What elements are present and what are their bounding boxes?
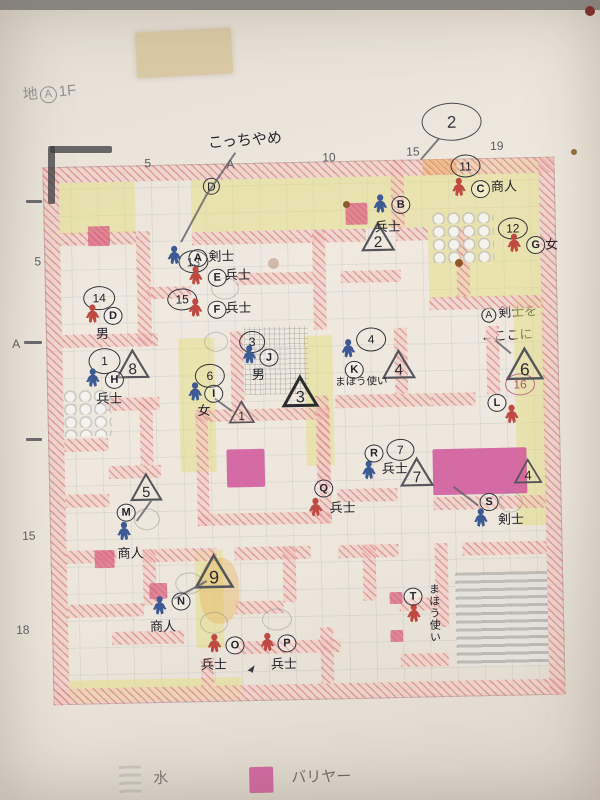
water-legend-label: 水 (153, 771, 168, 788)
wall-segment (65, 494, 109, 508)
masking-tape (135, 28, 233, 79)
barrier-square (390, 630, 403, 642)
pencil-tick-mark (26, 200, 42, 203)
wall-segment (136, 231, 152, 346)
barrier-square (389, 592, 402, 604)
wall-segment (335, 393, 431, 408)
svg-text:3: 3 (296, 388, 305, 406)
svg-text:4: 4 (524, 468, 532, 483)
pencil-tick-mark (26, 438, 42, 441)
wall-segment (341, 270, 401, 283)
svg-text:6: 6 (520, 359, 530, 379)
svg-text:9: 9 (209, 567, 220, 587)
wall-segment (320, 627, 334, 683)
water-legend-swatch (119, 765, 142, 795)
wall-segment (196, 410, 210, 526)
axis-label-top: 5 (144, 157, 151, 169)
figure-B (372, 194, 388, 214)
note-circled-a: A (481, 307, 497, 323)
figure-label-A: 剣士 (208, 249, 234, 264)
figure-M (116, 522, 132, 542)
axis-label-top: 10 (322, 151, 336, 163)
figure-label-N: 商人 (150, 620, 176, 635)
figure-label-Q: 兵士 (330, 501, 356, 516)
figure-label-I: 女 (197, 404, 210, 419)
circled-marker: 2 (421, 102, 482, 141)
figure-E (188, 266, 204, 286)
photo-of-hand-drawn-map: 地A1F こっちやめ A剣士を ←ここに 水 バリヤー 2D1112131415… (0, 0, 600, 800)
figure-label-P: 兵士 (271, 657, 297, 672)
connector-line (420, 138, 440, 160)
page-title: 地A1F (22, 83, 77, 106)
barrier-block (226, 449, 265, 488)
wall-segment (362, 544, 376, 600)
figure-label-T: まほう使い (427, 583, 440, 643)
axis-label-left: A (12, 338, 20, 350)
figure-label-F: 兵士 (225, 301, 251, 316)
entrance-arrow-mark (239, 663, 257, 681)
figure-label-H: 兵士 (96, 392, 122, 407)
axis-label-top: 19 (490, 140, 504, 152)
figure-N (151, 596, 167, 616)
figure-label-C: 商人 (491, 179, 517, 194)
svg-text:2: 2 (374, 234, 383, 251)
wall-segment (139, 399, 153, 465)
title-suffix: 1F (58, 82, 77, 101)
figure-label-O: 兵士 (201, 658, 227, 673)
triangle-marker: 3 (281, 374, 320, 409)
figure-label-M: 商人 (117, 546, 143, 561)
axis-label-top: A (226, 158, 234, 170)
title-circled-letter: A (39, 86, 57, 104)
wall-segment (462, 541, 546, 556)
title-prefix: 地 (22, 85, 38, 103)
wall-segment (68, 603, 144, 618)
wall-segment (282, 546, 296, 602)
photo-stain (343, 201, 350, 208)
figure-label-B: 兵士 (375, 220, 401, 235)
svg-text:4: 4 (394, 361, 403, 378)
figure-K (340, 339, 356, 359)
pencil-corner-bracket (48, 146, 55, 204)
figure-P (259, 633, 275, 653)
figure-O (206, 634, 222, 654)
figure-Q (307, 498, 323, 518)
photo-stain (455, 259, 463, 267)
svg-text:8: 8 (128, 361, 137, 378)
figure-T (406, 603, 422, 623)
figure-S (473, 508, 489, 528)
axis-label-left: 18 (16, 624, 30, 636)
wall-segment (192, 230, 312, 246)
figure-label-R: 兵士 (382, 462, 408, 477)
axis-label-left: 5 (34, 255, 41, 267)
wall-segment (312, 229, 327, 329)
photo-stain (585, 6, 595, 16)
figure-H (85, 368, 101, 388)
barrier-square (88, 226, 110, 246)
pencil-tick-mark (24, 341, 42, 344)
wall-segment (390, 160, 404, 228)
figure-label-J: 男 (252, 368, 265, 383)
axis-label-left: 15 (22, 530, 36, 542)
triangle-marker: 6 (504, 345, 545, 382)
figure-G (506, 233, 522, 253)
figure-F (187, 298, 203, 318)
figure-I (187, 382, 203, 402)
axis-label-top: 15 (406, 145, 420, 157)
svg-text:1: 1 (238, 409, 245, 423)
water-area (455, 571, 549, 667)
figure-label-D: 男 (96, 327, 109, 342)
triangle-marker: 5 (129, 471, 164, 503)
figure-label-E: 兵士 (225, 268, 251, 283)
wall-segment (234, 546, 310, 561)
figure-C (451, 177, 467, 197)
figure-label-S: 剣士 (498, 512, 524, 527)
note-kocchiyame: こっちやめ (207, 126, 282, 152)
map-layer: 地A1F こっちやめ A剣士を ←ここに 水 バリヤー 2D1112131415… (0, 0, 600, 800)
figure-A (166, 245, 182, 265)
photo-stain (571, 149, 577, 155)
barrier-square (94, 550, 114, 568)
figure-label-K: まほう使い (335, 376, 388, 389)
figure-L (504, 404, 520, 424)
figure-D (84, 304, 100, 324)
barrier-legend-swatch (249, 767, 274, 793)
photo-stain (268, 258, 279, 269)
wall-segment (431, 392, 475, 406)
wall-segment (429, 295, 541, 310)
wall-segment (486, 326, 500, 394)
wall-segment (64, 438, 108, 452)
wall-segment (401, 653, 449, 667)
figure-label-G: 女 (545, 238, 558, 253)
figure-R (361, 460, 377, 480)
rock-cluster (431, 210, 494, 263)
barrier-legend-label: バリヤー (291, 769, 351, 787)
pencil-corner-bracket (50, 146, 112, 153)
figure-J (241, 345, 257, 365)
triangle-marker: 1 (227, 399, 256, 425)
svg-text:5: 5 (142, 485, 151, 501)
svg-text:7: 7 (413, 469, 422, 486)
triangle-marker: 4 (513, 457, 544, 485)
